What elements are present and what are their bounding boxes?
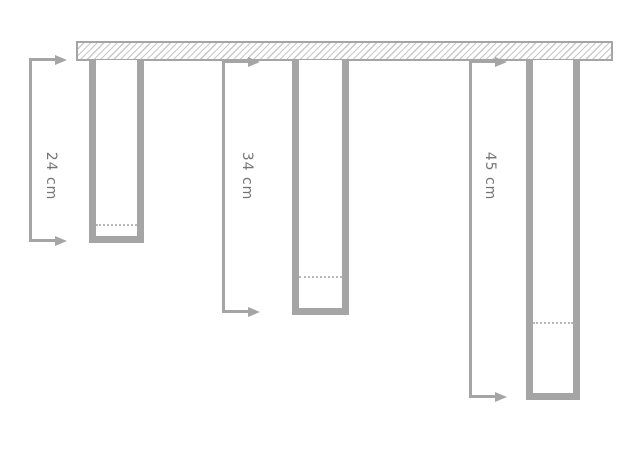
dimension-3-bottom-line xyxy=(469,395,496,398)
tube-2 xyxy=(292,60,349,315)
dimension-2-top-line xyxy=(222,60,249,63)
dimension-1-label: 24 cm xyxy=(43,152,59,201)
tube-1 xyxy=(89,60,144,243)
dimension-1-vertical-line xyxy=(29,58,32,242)
tube-3 xyxy=(526,60,580,400)
tube-1-level-line xyxy=(96,224,137,226)
dimension-2-bottom-line xyxy=(222,310,249,313)
arrow-right-icon xyxy=(248,307,260,317)
dimension-2-label: 34 cm xyxy=(239,152,255,201)
tube-2-level-line xyxy=(299,276,342,278)
arrow-right-icon xyxy=(55,55,67,65)
dimension-3-label: 45 cm xyxy=(482,152,498,201)
dimension-1-bottom-line xyxy=(29,239,56,242)
dimension-3-top-line xyxy=(469,60,496,63)
tube-3-level-line xyxy=(533,322,573,324)
support-bar xyxy=(76,41,613,61)
dimension-3-vertical-line xyxy=(469,60,472,398)
diagram-canvas: 24 cm 34 cm 45 cm xyxy=(0,0,640,450)
arrow-right-icon xyxy=(55,236,67,246)
dimension-2-vertical-line xyxy=(222,60,225,313)
arrow-right-icon xyxy=(495,57,507,67)
arrow-right-icon xyxy=(248,57,260,67)
arrow-right-icon xyxy=(495,392,507,402)
dimension-1-top-line xyxy=(29,58,56,61)
